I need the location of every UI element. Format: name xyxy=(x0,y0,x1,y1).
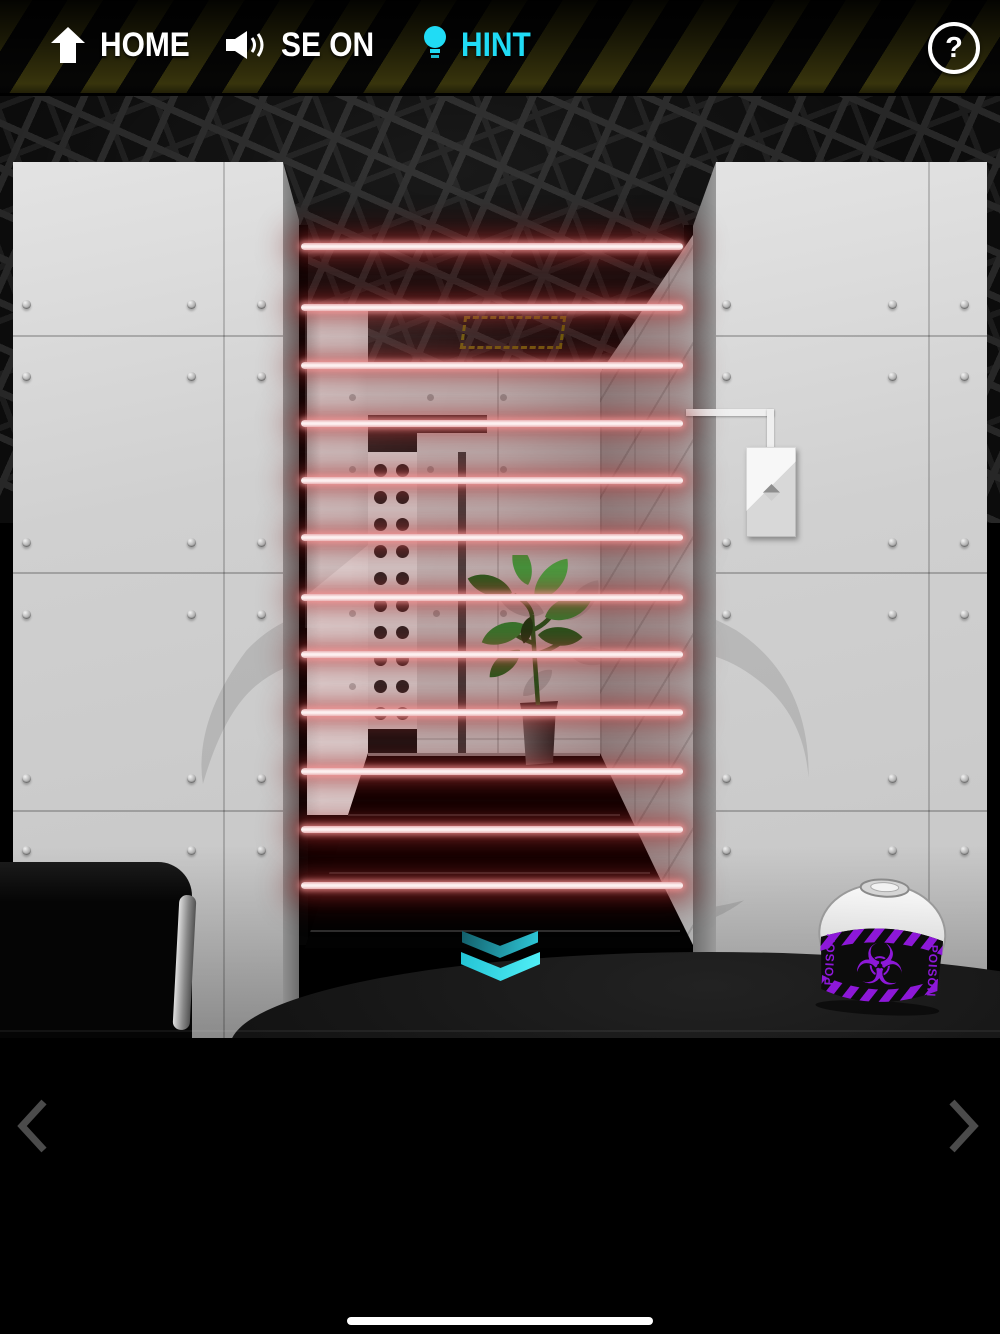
panel-hole xyxy=(396,464,409,477)
hint-lightbulb-icon xyxy=(422,25,448,65)
game-screen: HOME SE ON HINT ? ☣ xyxy=(0,0,1000,1334)
bottom-nav xyxy=(0,1038,1000,1334)
panel-footer xyxy=(368,729,417,753)
top-bar: HOME SE ON HINT ? xyxy=(0,0,1000,96)
panel-hole xyxy=(396,491,409,504)
panel-hole xyxy=(374,626,387,639)
wall-bolt xyxy=(427,466,434,473)
laser-beam xyxy=(301,768,683,775)
chair-silhouette[interactable] xyxy=(0,862,192,1038)
wall-bolt xyxy=(349,466,356,473)
wall-bolt xyxy=(349,610,356,617)
sound-label: SE ON xyxy=(281,26,374,65)
panel-hole xyxy=(396,626,409,639)
laser-beam xyxy=(301,304,683,311)
wall-bolt xyxy=(187,300,196,309)
poison-canister[interactable]: ☣ POISON POISON xyxy=(804,862,958,1016)
wall-bolt xyxy=(888,610,897,619)
home-indicator[interactable] xyxy=(347,1317,653,1325)
panel-hole xyxy=(396,545,409,558)
hint-button[interactable]: HINT xyxy=(422,0,540,90)
laser-beam xyxy=(301,477,683,484)
elevator-call-panel[interactable] xyxy=(746,447,796,537)
panel-hole xyxy=(396,680,409,693)
panel-hole xyxy=(374,572,387,585)
wall-bolt xyxy=(960,774,969,783)
wall-bolt xyxy=(722,300,731,309)
sound-toggle-button[interactable]: SE ON xyxy=(226,0,387,90)
call-button-diamond-icon[interactable] xyxy=(763,484,780,501)
home-up-arrow-icon xyxy=(49,26,87,64)
question-mark-icon: ? xyxy=(945,34,963,63)
call-panel-cable xyxy=(686,409,774,416)
panel-hole xyxy=(374,518,387,531)
wall-bolt xyxy=(433,610,440,617)
poison-label-left: POISON xyxy=(822,932,839,985)
wall-bolt xyxy=(960,372,969,381)
wall-bolt xyxy=(500,610,507,617)
wall-bolt xyxy=(22,774,31,783)
panel-hole xyxy=(374,680,387,693)
poison-label-right: POISON xyxy=(924,944,941,997)
panel-hole xyxy=(374,464,387,477)
wall-bolt xyxy=(187,372,196,381)
laser-beam xyxy=(301,882,683,889)
wall-bolt xyxy=(722,538,731,547)
wall-bolt xyxy=(722,610,731,619)
laser-beam xyxy=(301,651,683,658)
wall-bolt xyxy=(960,846,969,855)
laser-beam xyxy=(301,420,683,427)
panel-hole xyxy=(374,545,387,558)
home-button[interactable]: HOME xyxy=(49,0,202,90)
wall-bolt xyxy=(257,774,266,783)
wall-bolt xyxy=(722,846,731,855)
wall-bolt xyxy=(349,394,356,401)
wall-bolt xyxy=(888,300,897,309)
wall-bolt xyxy=(888,774,897,783)
wall-bolt xyxy=(257,372,266,381)
wall-bolt xyxy=(888,372,897,381)
wall-bolt xyxy=(960,300,969,309)
wall-bolt xyxy=(257,846,266,855)
laser-beam xyxy=(301,362,683,369)
laser-beam xyxy=(301,243,683,250)
corridor-left-column xyxy=(307,308,368,815)
wall-bolt xyxy=(500,394,507,401)
panel-hole xyxy=(396,572,409,585)
wall-bolt xyxy=(888,846,897,855)
speaker-icon xyxy=(226,30,268,60)
wall-bolt xyxy=(960,610,969,619)
potted-plant[interactable] xyxy=(450,555,600,770)
wall-bolt xyxy=(22,372,31,381)
wall-bolt xyxy=(722,774,731,783)
wall-bolt xyxy=(349,683,356,690)
wall-bolt xyxy=(722,372,731,381)
wall-bolt xyxy=(500,466,507,473)
room-scene: ☣ ☣ xyxy=(0,93,1000,1038)
wall-left-edge xyxy=(283,162,299,1038)
wall-right-edge xyxy=(693,162,716,1038)
panel-hole xyxy=(374,491,387,504)
panel-hole xyxy=(396,518,409,531)
wall-bolt xyxy=(187,846,196,855)
wall-bolt xyxy=(22,300,31,309)
laser-beam xyxy=(301,826,683,833)
wall-bolt xyxy=(22,610,31,619)
panel-header xyxy=(368,433,417,452)
wall-bolt xyxy=(427,394,434,401)
wall-bolt xyxy=(187,538,196,547)
laser-beam xyxy=(301,594,683,601)
canister-biohazard-icon: ☣ xyxy=(853,932,907,1000)
help-button[interactable]: ? xyxy=(928,22,980,74)
wall-bolt xyxy=(257,538,266,547)
ceiling-hatch-outline[interactable] xyxy=(460,316,567,349)
wall-bolt xyxy=(22,538,31,547)
laser-beam xyxy=(301,709,683,716)
wall-bolt xyxy=(257,300,266,309)
home-label: HOME xyxy=(100,26,190,65)
hint-label: HINT xyxy=(461,26,531,65)
laser-beam xyxy=(301,534,683,541)
prev-arrow[interactable] xyxy=(14,1096,50,1156)
floor-edge xyxy=(0,1030,1000,1032)
wall-bolt xyxy=(960,538,969,547)
wall-bolt xyxy=(22,846,31,855)
wall-bolt xyxy=(187,774,196,783)
wall-bolt xyxy=(888,538,897,547)
next-arrow[interactable] xyxy=(946,1096,982,1156)
wall-bolt xyxy=(257,610,266,619)
wall-bolt xyxy=(187,610,196,619)
